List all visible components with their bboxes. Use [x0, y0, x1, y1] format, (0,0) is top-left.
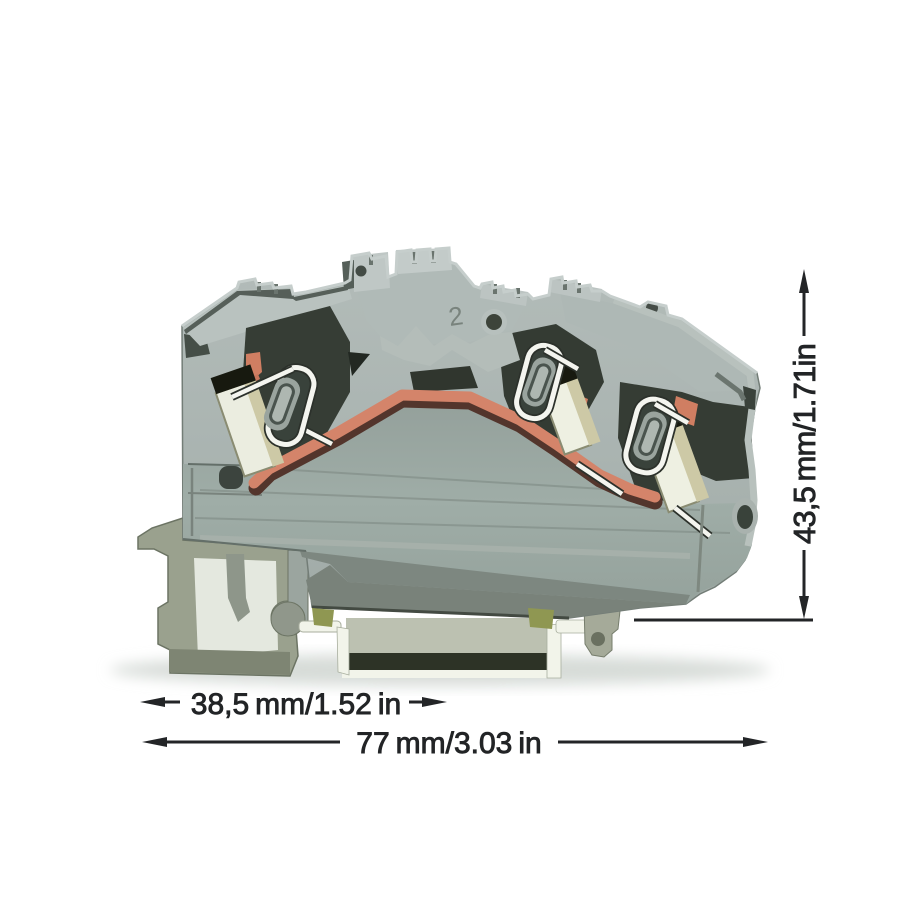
- svg-text:77 mm/3.03 in: 77 mm/3.03 in: [356, 727, 541, 760]
- svg-text:38,5 mm/1.52 in: 38,5 mm/1.52 in: [191, 688, 401, 721]
- svg-text:43,5 mm/1.71in: 43,5 mm/1.71in: [787, 344, 822, 544]
